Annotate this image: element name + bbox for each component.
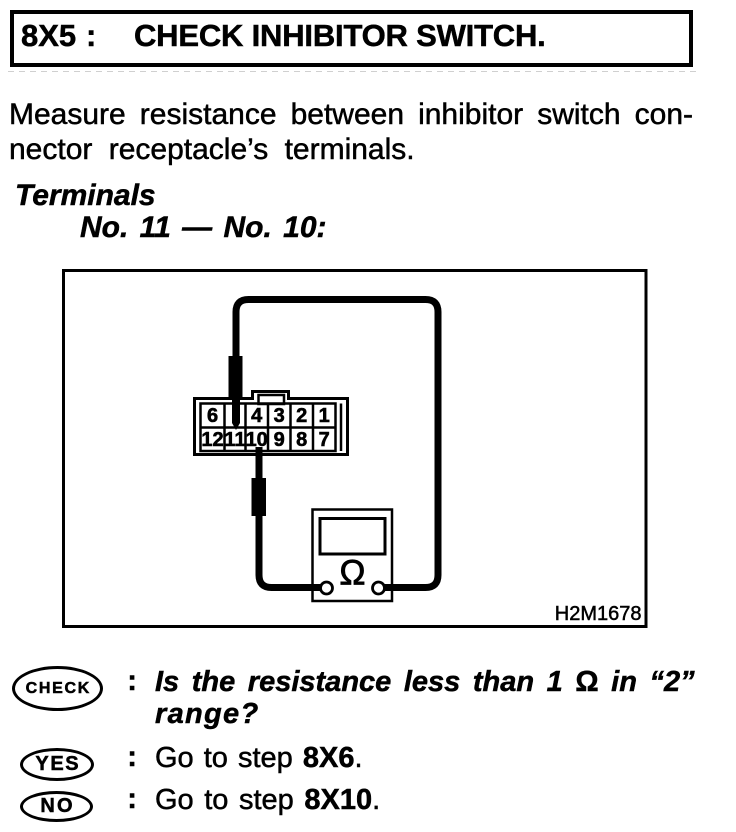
svg-text:Ω: Ω bbox=[339, 554, 365, 593]
svg-text:12: 12 bbox=[201, 429, 223, 451]
svg-text:2: 2 bbox=[296, 405, 307, 427]
svg-text:9: 9 bbox=[274, 429, 285, 451]
svg-text:11: 11 bbox=[224, 429, 245, 451]
svg-text:1: 1 bbox=[319, 405, 330, 427]
svg-text:6: 6 bbox=[207, 405, 218, 427]
svg-text:8: 8 bbox=[296, 429, 307, 451]
svg-text:H2M1678: H2M1678 bbox=[555, 603, 642, 625]
svg-text:4: 4 bbox=[251, 405, 263, 427]
svg-text:3: 3 bbox=[274, 405, 285, 427]
svg-text:7: 7 bbox=[319, 429, 330, 451]
